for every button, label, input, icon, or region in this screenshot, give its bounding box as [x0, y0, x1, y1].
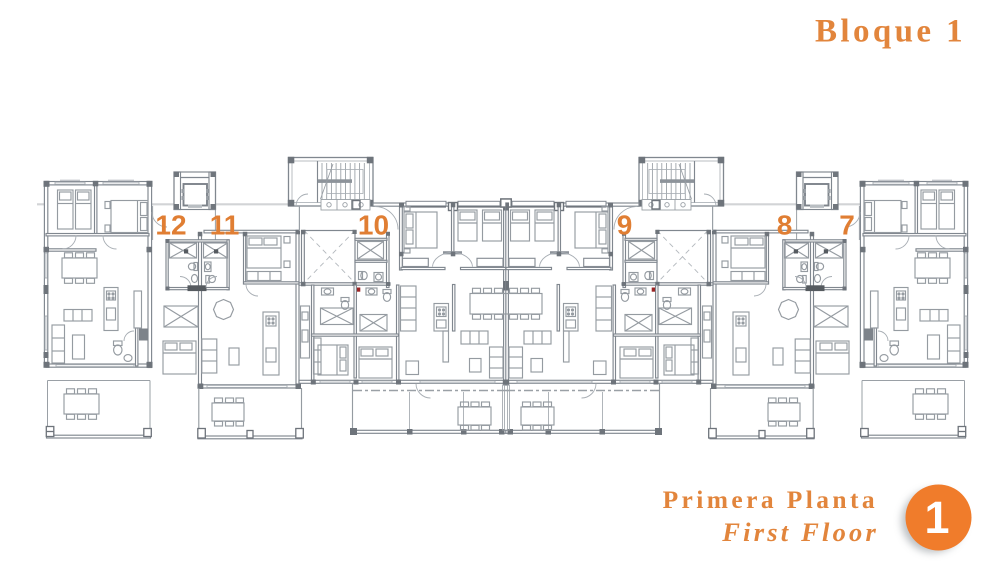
- svg-text:Primera Planta: Primera Planta: [663, 485, 878, 514]
- svg-text:11: 11: [210, 210, 240, 241]
- svg-text:1: 1: [924, 492, 949, 543]
- svg-text:First Floor: First Floor: [721, 517, 879, 547]
- svg-text:9: 9: [617, 210, 633, 241]
- svg-text:12: 12: [155, 210, 186, 241]
- svg-text:7: 7: [839, 210, 855, 241]
- svg-text:8: 8: [777, 210, 793, 241]
- svg-text:10: 10: [358, 210, 389, 241]
- svg-text:Bloque 1: Bloque 1: [815, 14, 966, 50]
